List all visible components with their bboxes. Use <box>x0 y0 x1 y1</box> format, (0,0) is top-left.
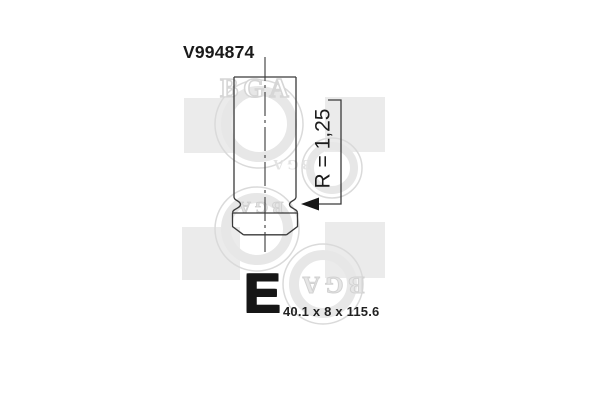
valve-technical-diagram: BGA BGA BGA BGA V994874 R = 1,25 E 40.1 … <box>0 0 600 400</box>
valve-drawing <box>0 0 600 400</box>
valve-type-code-letter: E <box>244 266 281 321</box>
radius-dimension-label: R = 1,25 <box>311 107 336 191</box>
part-number-label: V994874 <box>183 42 254 63</box>
radius-arrow-icon <box>301 198 319 211</box>
dimensions-label: 40.1 x 8 x 115.6 <box>283 304 379 319</box>
